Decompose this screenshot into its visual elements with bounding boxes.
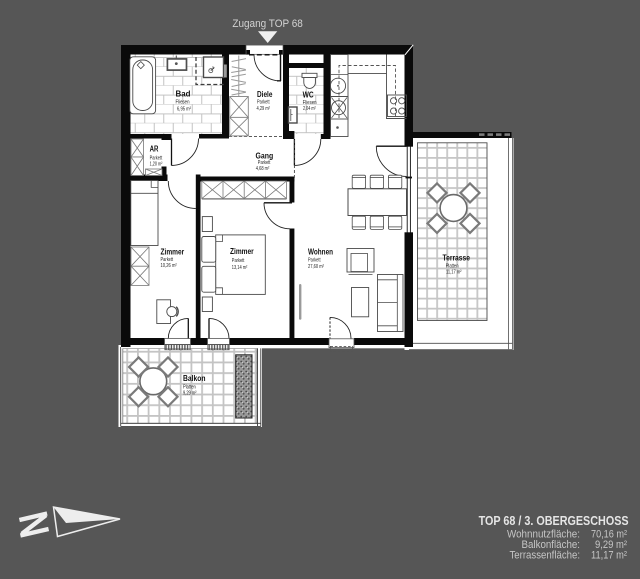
svg-text:10,26 m²: 10,26 m² [161,263,177,269]
svg-text:Parkett: Parkett [257,100,270,106]
svg-text:11,17 m²: 11,17 m² [591,550,627,562]
svg-text:TOP 68 / 3. OBERGESCHOSS: TOP 68 / 3. OBERGESCHOSS [479,513,629,528]
svg-text:2,04 m²: 2,04 m² [303,106,316,112]
svg-text:Diele: Diele [257,89,273,99]
svg-text:13,14 m²: 13,14 m² [232,265,248,271]
svg-text:1,20 m²: 1,20 m² [150,161,163,167]
svg-text:27,60 m²: 27,60 m² [308,264,324,270]
svg-text:Wohnen: Wohnen [308,247,333,257]
svg-text:Terrassenfläche:: Terrassenfläche: [510,550,581,562]
svg-text:Zimmer: Zimmer [230,246,254,256]
svg-text:Parkett: Parkett [308,258,321,264]
svg-text:Gang: Gang [256,151,274,161]
svg-text:Zugang TOP 68: Zugang TOP 68 [232,18,303,30]
svg-text:Bad: Bad [176,88,191,98]
svg-text:9,29 m²: 9,29 m² [183,390,197,396]
svg-text:AR: AR [150,144,159,154]
svg-text:WC: WC [303,89,314,99]
svg-text:Parkett: Parkett [161,257,174,263]
svg-text:Parkett: Parkett [232,258,245,264]
svg-text:6,95 m²: 6,95 m² [177,107,191,113]
svg-text:4,68 m²: 4,68 m² [256,166,270,172]
svg-text:4,29 m²: 4,29 m² [257,106,271,112]
svg-text:11,17 m²: 11,17 m² [446,269,462,275]
svg-text:Zimmer: Zimmer [161,247,185,257]
svg-text:Balkon: Balkon [183,373,206,383]
svg-text:Terrasse: Terrasse [443,253,471,263]
svg-text:Fliesen: Fliesen [176,99,190,105]
